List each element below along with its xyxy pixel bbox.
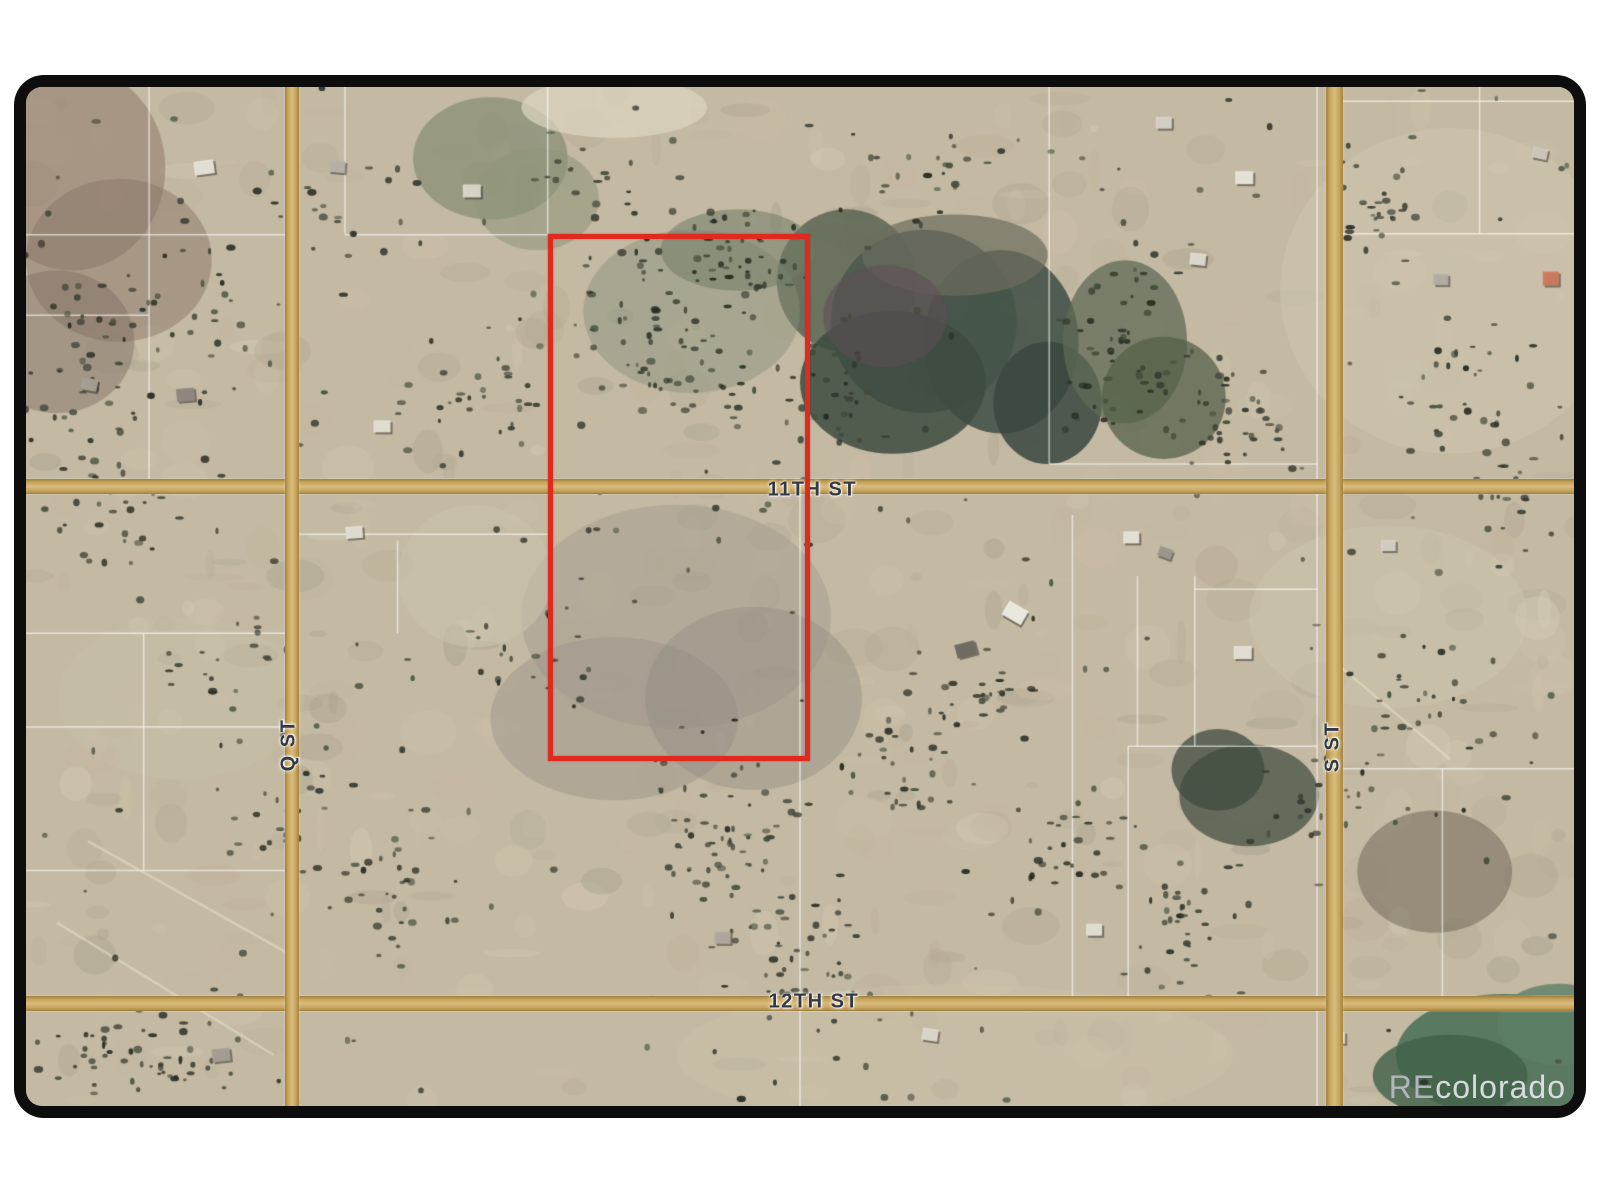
aerial-map: 11TH ST 12TH ST Q ST S ST REcolorado [26, 87, 1574, 1106]
road-q-st [285, 87, 299, 1106]
subject-parcel-outline [548, 234, 810, 761]
road-s-st [1326, 87, 1343, 1106]
watermark-re-text: RE [1389, 1069, 1435, 1105]
street-label-s-st: S ST [1321, 722, 1344, 772]
recolorado-watermark: REcolorado [1389, 1069, 1566, 1106]
street-label-12th-st: 12TH ST [769, 991, 860, 1014]
street-label-q-st: Q ST [278, 719, 301, 772]
watermark-colorado-text: colorado [1435, 1069, 1566, 1105]
photo-frame: 11TH ST 12TH ST Q ST S ST REcolorado [14, 75, 1586, 1118]
